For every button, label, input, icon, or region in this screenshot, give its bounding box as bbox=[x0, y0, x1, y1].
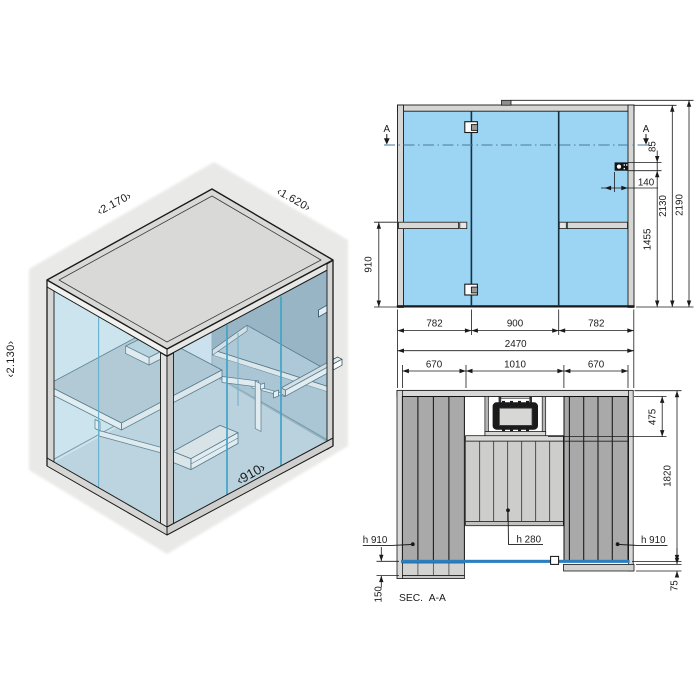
svg-text:h 910: h 910 bbox=[641, 535, 666, 546]
svg-text:670: 670 bbox=[426, 360, 443, 371]
svg-text:75: 75 bbox=[670, 580, 681, 591]
svg-text:782: 782 bbox=[588, 319, 604, 330]
svg-text:670: 670 bbox=[588, 360, 605, 371]
svg-text:782: 782 bbox=[426, 319, 442, 330]
svg-text:910: 910 bbox=[363, 256, 374, 273]
svg-text:475: 475 bbox=[648, 408, 659, 425]
svg-text:1820: 1820 bbox=[663, 465, 674, 487]
svg-text:2130: 2130 bbox=[658, 195, 669, 217]
svg-text:2190: 2190 bbox=[674, 194, 685, 216]
svg-text:1455: 1455 bbox=[643, 228, 654, 250]
svg-text:900: 900 bbox=[507, 319, 524, 330]
svg-text:A: A bbox=[643, 124, 650, 135]
svg-text:2470: 2470 bbox=[505, 339, 527, 350]
svg-text:h 280: h 280 bbox=[517, 534, 542, 545]
svg-text:SEC. A-A: SEC. A-A bbox=[399, 593, 446, 604]
svg-text:‹2.130›: ‹2.130› bbox=[5, 340, 17, 377]
svg-text:140: 140 bbox=[638, 177, 655, 188]
svg-text:85: 85 bbox=[647, 141, 658, 152]
svg-text:1010: 1010 bbox=[504, 360, 526, 371]
svg-text:h 910: h 910 bbox=[363, 535, 388, 546]
svg-text:150: 150 bbox=[373, 586, 384, 603]
svg-text:A: A bbox=[384, 124, 391, 135]
